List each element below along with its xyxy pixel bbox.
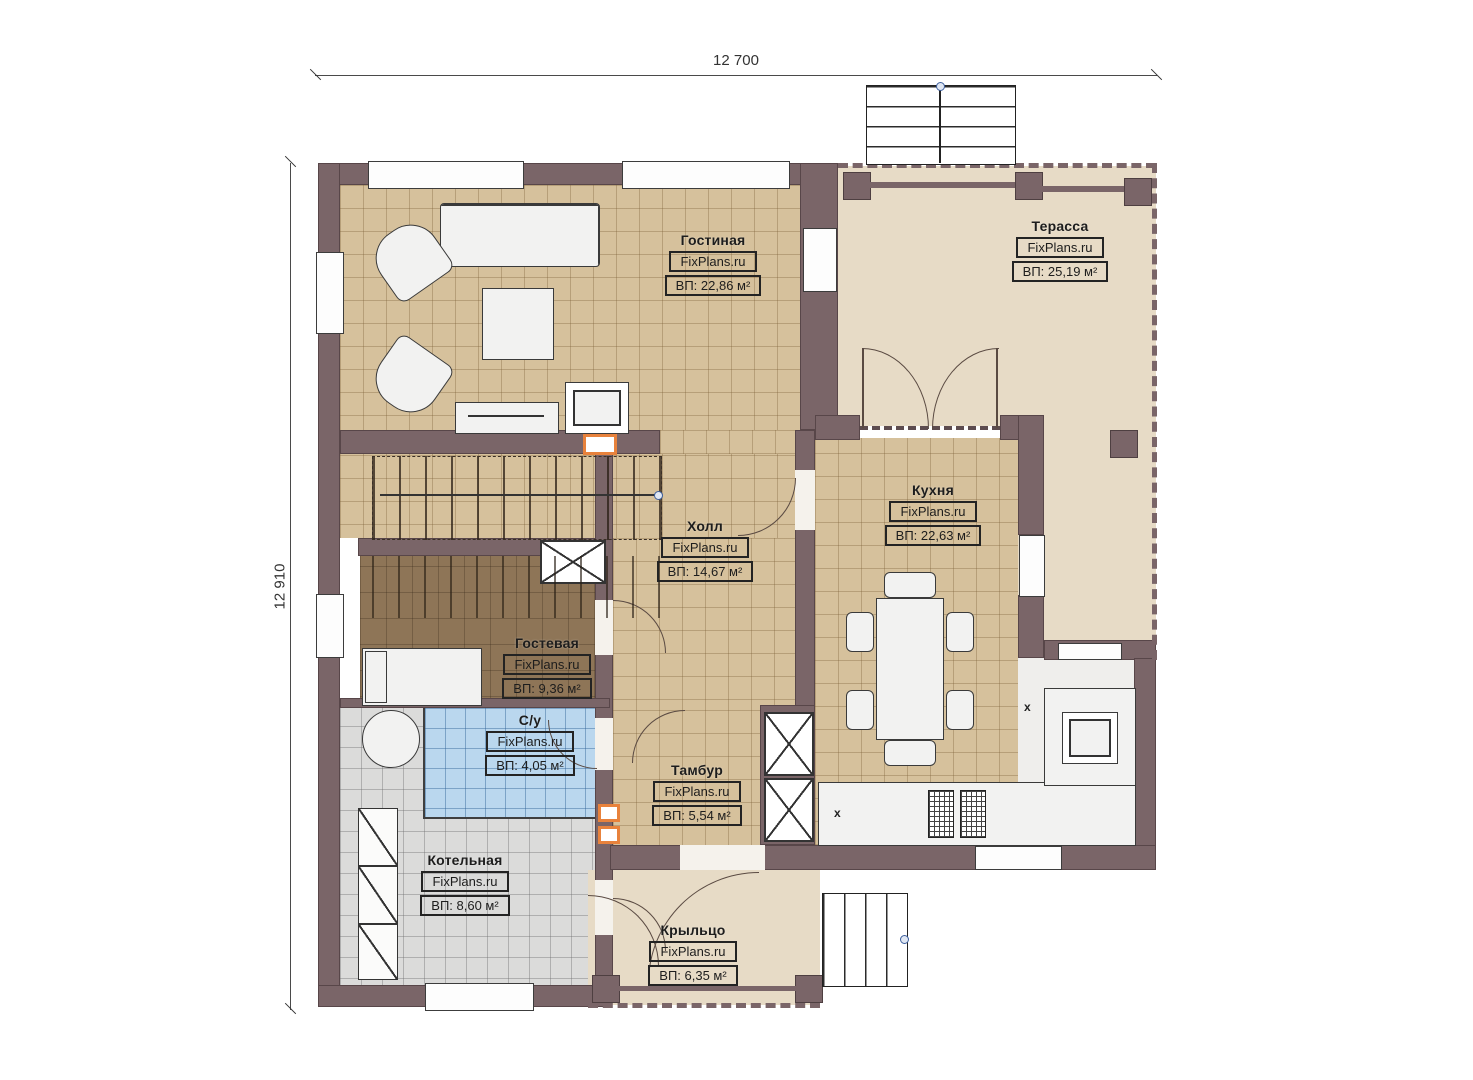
window-south-kitchen bbox=[975, 846, 1062, 870]
room-label-porch: Крыльцо FixPlans.ru ВП: 6,35 м² bbox=[618, 922, 768, 986]
boiler-tank bbox=[362, 710, 420, 768]
stair-direction-line bbox=[380, 494, 655, 496]
room-label-bathroom: С/у FixPlans.ru ВП: 4,05 м² bbox=[455, 712, 605, 776]
window-south-boiler bbox=[425, 983, 534, 1011]
counter-mark: x bbox=[1024, 700, 1031, 714]
stove-icon bbox=[928, 790, 954, 838]
porch-exterior-steps bbox=[822, 893, 908, 987]
terrace-railing bbox=[869, 182, 1015, 188]
wall-kitchen-north-left bbox=[815, 415, 860, 440]
tv-stand bbox=[455, 402, 559, 434]
tv-icon bbox=[468, 415, 544, 417]
watermark-box: FixPlans.ru bbox=[486, 731, 573, 752]
room-area: ВП: 5,54 м² bbox=[652, 805, 741, 826]
window-living-terrace bbox=[803, 228, 837, 292]
window-west-guest bbox=[316, 594, 344, 658]
dining-chair bbox=[946, 612, 974, 652]
wall-living-terrace bbox=[800, 163, 838, 430]
wall-east-lower bbox=[1134, 658, 1156, 868]
room-name: Тамбур bbox=[671, 762, 723, 778]
porch-railing bbox=[614, 986, 799, 991]
window-north-2 bbox=[622, 161, 790, 189]
room-label-terrace: Терасса FixPlans.ru ВП: 25,19 м² bbox=[985, 218, 1135, 282]
room-name: Крыльцо bbox=[660, 922, 725, 938]
dining-table bbox=[876, 598, 944, 740]
room-label-tambour: Тамбур FixPlans.ru ВП: 5,54 м² bbox=[622, 762, 772, 826]
stair-snap-point bbox=[654, 491, 663, 500]
coffee-table bbox=[482, 288, 554, 360]
watermark-box: FixPlans.ru bbox=[421, 871, 508, 892]
room-area: ВП: 22,86 м² bbox=[665, 275, 762, 296]
radiator bbox=[598, 826, 620, 844]
porch-edge-south bbox=[588, 1003, 820, 1008]
room-name: Кухня bbox=[912, 482, 954, 498]
room-area: ВП: 14,67 м² bbox=[657, 561, 754, 582]
window-kitchen-east bbox=[1019, 535, 1045, 597]
porch-column bbox=[795, 975, 823, 1003]
watermark-box: FixPlans.ru bbox=[889, 501, 976, 522]
dining-chair bbox=[884, 572, 936, 598]
fireplace bbox=[565, 382, 629, 434]
terrace-column bbox=[1015, 172, 1043, 200]
room-area: ВП: 22,63 м² bbox=[885, 525, 982, 546]
room-name: Гостиная bbox=[681, 232, 746, 248]
terrace-edge-east bbox=[1152, 163, 1157, 660]
terrace-railing bbox=[1041, 186, 1124, 192]
room-label-boiler: Котельная FixPlans.ru ВП: 8,60 м² bbox=[390, 852, 540, 916]
room-area: ВП: 9,36 м² bbox=[502, 678, 591, 699]
stair-upper-flight bbox=[372, 456, 662, 540]
terrace-column bbox=[1124, 178, 1152, 206]
stair-snap-point bbox=[900, 935, 909, 944]
window-terrace-south bbox=[1058, 643, 1122, 660]
stair-center-line bbox=[939, 85, 941, 163]
floor-plan-canvas: 12 700 12 910 bbox=[0, 0, 1473, 1080]
wall-kitchen-east-lower bbox=[1018, 595, 1044, 658]
terrace-column bbox=[843, 172, 871, 200]
stove-icon bbox=[960, 790, 986, 838]
room-label-guest: Гостевая FixPlans.ru ВП: 9,36 м² bbox=[472, 635, 622, 699]
room-name: Терасса bbox=[1032, 218, 1089, 234]
stair-snap-point bbox=[936, 82, 945, 91]
bed-pillow bbox=[365, 651, 387, 703]
watermark-box: FixPlans.ru bbox=[1016, 237, 1103, 258]
dining-chair bbox=[946, 690, 974, 730]
door-leaf bbox=[996, 348, 998, 428]
watermark-box: FixPlans.ru bbox=[661, 537, 748, 558]
watermark-box: FixPlans.ru bbox=[649, 941, 736, 962]
room-name: С/у bbox=[519, 712, 541, 728]
dining-chair bbox=[846, 690, 874, 730]
radiator bbox=[598, 804, 620, 822]
counter-mark: x bbox=[834, 806, 841, 820]
boiler-equipment bbox=[358, 924, 398, 980]
room-area: ВП: 6,35 м² bbox=[648, 965, 737, 986]
room-area: ВП: 8,60 м² bbox=[420, 895, 509, 916]
room-label-hall: Холл FixPlans.ru ВП: 14,67 м² bbox=[630, 518, 780, 582]
room-label-living: Гостиная FixPlans.ru ВП: 22,86 м² bbox=[638, 232, 788, 296]
opening-living-hall bbox=[660, 430, 795, 454]
watermark-box: FixPlans.ru bbox=[653, 781, 740, 802]
window-north-1 bbox=[368, 161, 524, 189]
room-name: Котельная bbox=[427, 852, 502, 868]
stair-lower-flight bbox=[372, 556, 660, 618]
dining-chair bbox=[884, 740, 936, 766]
dining-chair bbox=[846, 612, 874, 652]
dimension-line-top bbox=[315, 75, 1157, 76]
sofa bbox=[440, 203, 600, 267]
terrace-exterior-stair bbox=[866, 85, 1016, 165]
dimension-line-left bbox=[290, 163, 291, 1010]
terrace-column bbox=[1110, 430, 1138, 458]
door-opening-entrance bbox=[680, 845, 765, 870]
dimension-height-label: 12 910 bbox=[272, 547, 289, 627]
watermark-box: FixPlans.ru bbox=[503, 654, 590, 675]
sink-icon bbox=[1062, 712, 1118, 764]
room-area: ВП: 25,19 м² bbox=[1012, 261, 1109, 282]
dimension-width-label: 12 700 bbox=[315, 52, 1157, 69]
wall-kitchen-east-upper bbox=[1018, 415, 1044, 535]
watermark-box: FixPlans.ru bbox=[669, 251, 756, 272]
room-name: Холл bbox=[687, 518, 723, 534]
radiator bbox=[583, 434, 617, 455]
room-label-kitchen: Кухня FixPlans.ru ВП: 22,63 м² bbox=[858, 482, 1008, 546]
door-opening-hall-kitchen bbox=[795, 470, 815, 530]
window-west-living bbox=[316, 252, 344, 334]
room-area: ВП: 4,05 м² bbox=[485, 755, 574, 776]
door-leaf bbox=[862, 348, 864, 428]
room-name: Гостевая bbox=[515, 635, 579, 651]
